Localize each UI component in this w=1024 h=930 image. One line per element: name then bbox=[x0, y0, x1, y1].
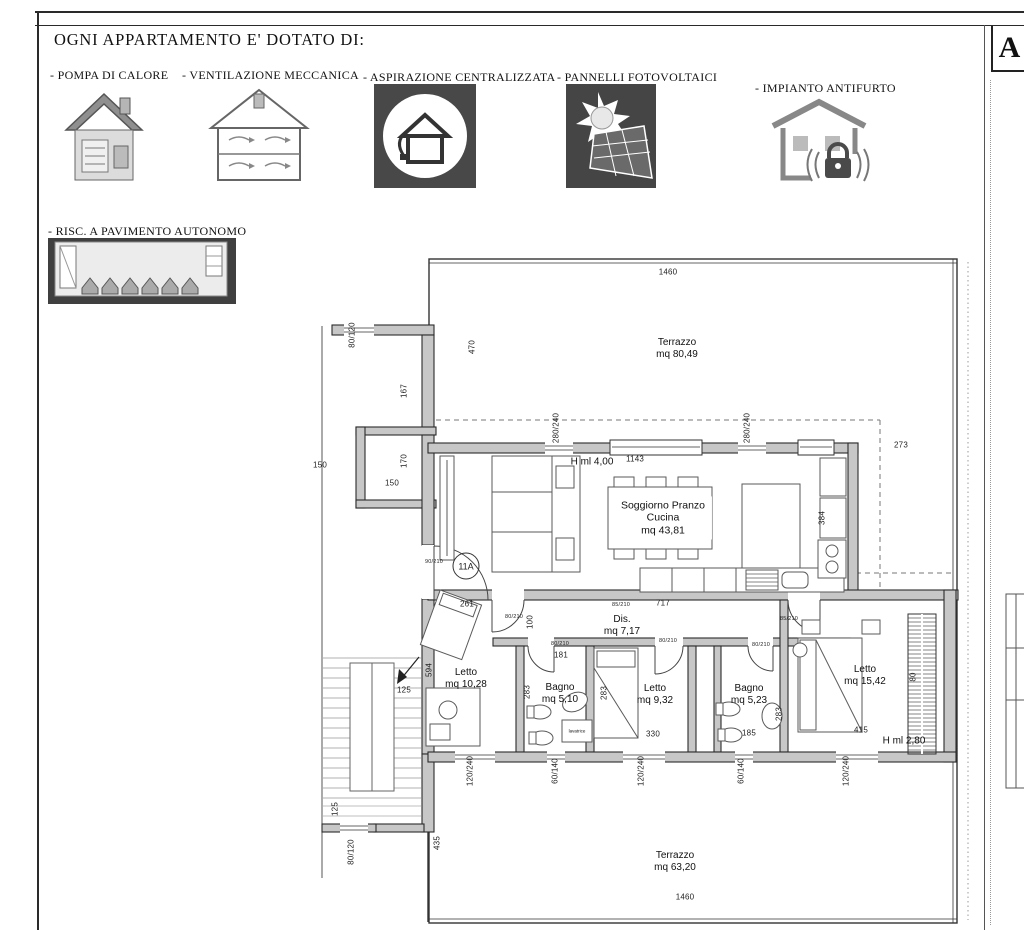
room-name: Bagno bbox=[731, 683, 767, 695]
room-name: Dis. bbox=[604, 614, 640, 626]
room-area: mq 7,17 bbox=[604, 626, 640, 638]
dim-label: 80 bbox=[909, 672, 918, 681]
dim-label: 717 bbox=[656, 599, 670, 608]
room-area: mq 5,23 bbox=[731, 695, 767, 707]
dim-label: 261 bbox=[460, 600, 474, 609]
dim-label: 283 bbox=[523, 685, 532, 699]
apartment-number-badge: 11A bbox=[453, 553, 480, 580]
room-name-2: Cucina bbox=[621, 512, 705, 524]
dim-label: 80/120 bbox=[347, 839, 356, 865]
dim-label: 125 bbox=[397, 686, 411, 695]
dim-label: 280/240 bbox=[552, 413, 561, 443]
room-label-bagno-1: Bagno mq 5,10 bbox=[542, 682, 578, 706]
dim-label: 125 bbox=[331, 802, 340, 816]
room-name: Letto bbox=[445, 667, 487, 679]
room-name: Letto bbox=[844, 664, 886, 676]
ceiling-height-living: H ml 4,00 bbox=[571, 457, 614, 468]
dim-label: 150 bbox=[313, 461, 327, 470]
room-area: mq 80,49 bbox=[656, 349, 698, 361]
dim-label: 185 bbox=[742, 729, 756, 738]
dim-label: 120/240 bbox=[466, 756, 475, 786]
dim-label: 330 bbox=[646, 730, 660, 739]
door-dim-label: 85/210 bbox=[780, 616, 798, 622]
room-label-letto-3: Letto mq 15,42 bbox=[844, 664, 886, 688]
room-name: Bagno bbox=[542, 682, 578, 694]
door-dim-label: 80/210 bbox=[752, 642, 770, 648]
ceiling-height-bedroom: H ml 2,80 bbox=[883, 736, 926, 747]
floor-plan-drawing bbox=[0, 0, 1024, 930]
dim-label: 283 bbox=[775, 707, 784, 721]
dim-label: 435 bbox=[433, 836, 442, 850]
dim-label: 181 bbox=[554, 651, 568, 660]
dim-label: 280/240 bbox=[743, 413, 752, 443]
dim-label: 594 bbox=[425, 663, 434, 677]
room-label-terrazzo-top: Terrazzo mq 80,49 bbox=[656, 337, 698, 361]
dim-label: 150 bbox=[385, 479, 399, 488]
apartment-number: 11A bbox=[458, 561, 473, 571]
washer-label: lavatrice bbox=[569, 729, 586, 734]
dim-label: 120/240 bbox=[637, 756, 646, 786]
dim-label: 283 bbox=[600, 686, 609, 700]
room-name: Terrazzo bbox=[656, 337, 698, 349]
room-area: mq 63,20 bbox=[654, 862, 696, 874]
dim-label: 60/140 bbox=[737, 758, 746, 784]
dim-label: 100 bbox=[526, 615, 535, 629]
door-dim-label: 85/210 bbox=[612, 602, 630, 608]
door-dim-label: 80/210 bbox=[659, 638, 677, 644]
dim-label: 273 bbox=[894, 441, 908, 450]
dim-label: 170 bbox=[400, 454, 409, 468]
room-name: Letto bbox=[637, 683, 673, 695]
dim-label: 1460 bbox=[659, 268, 678, 277]
door-dim-label: 90/210 bbox=[425, 559, 443, 565]
dim-label: 120/240 bbox=[842, 756, 851, 786]
dim-label: 470 bbox=[468, 340, 477, 354]
dim-label: 384 bbox=[818, 511, 827, 525]
room-label-letto-1: Letto mq 10,28 bbox=[445, 667, 487, 691]
room-label-dis: Dis. mq 7,17 bbox=[604, 614, 640, 638]
room-label-bagno-2: Bagno mq 5,23 bbox=[731, 683, 767, 707]
room-name: Soggiorno Pranzo bbox=[621, 499, 705, 511]
floor-plan-page: A OGNI APPARTAMENTO E' DOTATO DI: - POMP… bbox=[0, 0, 1024, 930]
dim-label: 1143 bbox=[626, 455, 644, 464]
room-name: Terrazzo bbox=[654, 850, 696, 862]
room-label-soggiorno: Soggiorno Pranzo Cucina mq 43,81 bbox=[614, 496, 712, 539]
room-area: mq 9,32 bbox=[637, 695, 673, 707]
dim-label: 80/120 bbox=[348, 322, 357, 348]
dim-label: 167 bbox=[400, 384, 409, 398]
door-dim-label: 80/210 bbox=[505, 614, 523, 620]
room-area: mq 5,10 bbox=[542, 694, 578, 706]
dim-label: 60/140 bbox=[551, 758, 560, 784]
room-area: mq 10,28 bbox=[445, 679, 487, 691]
room-area: mq 43,81 bbox=[621, 524, 705, 536]
room-area: mq 15,42 bbox=[844, 676, 886, 688]
room-label-letto-2: Letto mq 9,32 bbox=[637, 683, 673, 707]
dim-label: 415 bbox=[854, 726, 868, 735]
dim-label: 1460 bbox=[676, 893, 695, 902]
door-dim-label: 80/210 bbox=[551, 641, 569, 647]
room-label-terrazzo-bottom: Terrazzo mq 63,20 bbox=[654, 850, 696, 874]
